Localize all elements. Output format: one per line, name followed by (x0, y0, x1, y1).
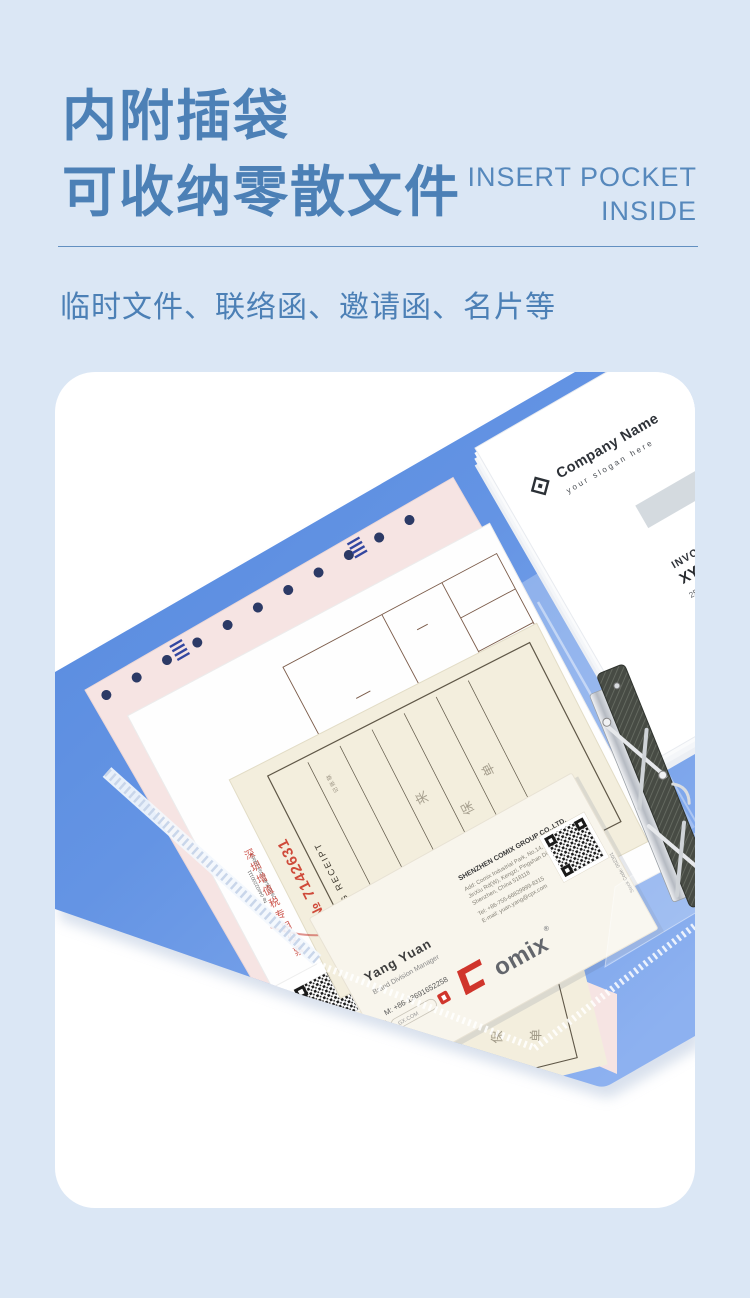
hero-banner: 内附插袋 可收纳零散文件 INSERT POCKET INSIDE 临时文件、联… (0, 0, 750, 372)
description-text: 临时文件、联络函、邀请函、名片等 (60, 282, 556, 326)
svg-text:湘: 湘 (412, 1052, 427, 1065)
box-footer-caption: 收 据 专 用 (446, 1072, 474, 1086)
svg-text:单: 单 (528, 1029, 543, 1042)
daikai-label: 代开 (284, 1003, 304, 1026)
headline-en-line1: INSERT POCKET (467, 160, 697, 194)
headline-cn: 内附插袋 可收纳零散文件 (62, 78, 461, 230)
divider-line (58, 246, 698, 247)
company-logo-icon (532, 478, 548, 494)
product-photo: 3453876+354+4233 84285376-234-2233 +91<2… (55, 372, 695, 1208)
headline-line1: 内附插袋 (62, 78, 461, 154)
headline-en-line2: INSIDE (467, 194, 697, 228)
headline-line2: 可收纳零散文件 (62, 154, 461, 230)
product-photo-card: 3453876+354+4233 84285376-234-2233 +91<2… (55, 372, 695, 1208)
headline-en: INSERT POCKET INSIDE (467, 160, 697, 228)
